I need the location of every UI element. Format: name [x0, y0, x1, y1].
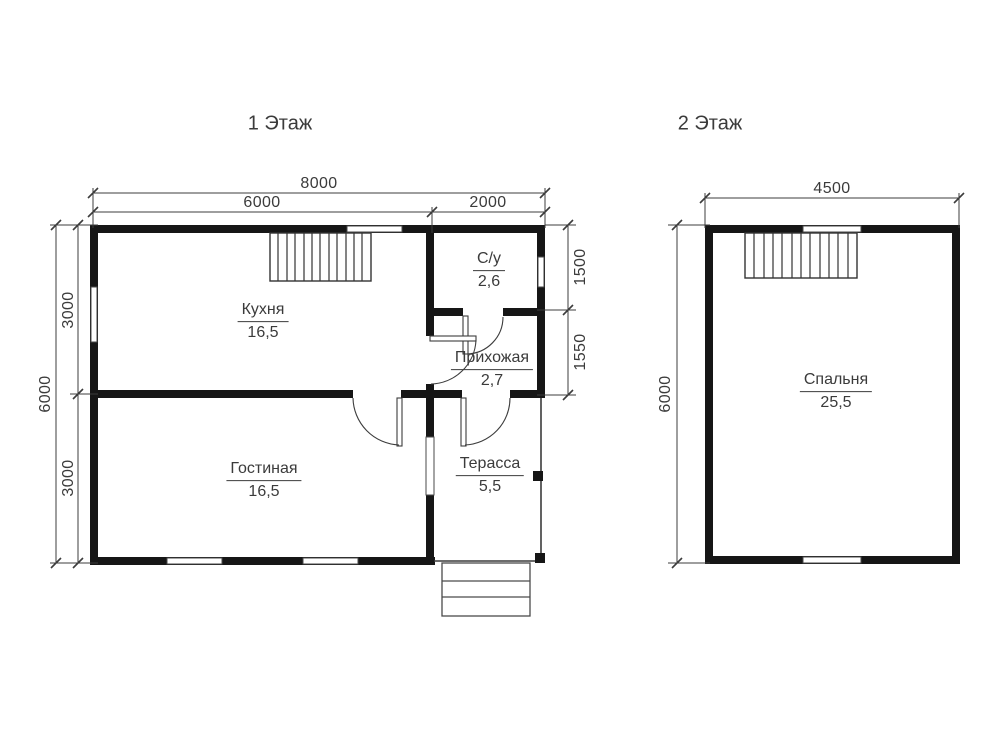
wall-top [90, 225, 545, 233]
floor2-title: 2 Этаж [678, 113, 743, 136]
floorplan-canvas: 1 Этаж 2 Этаж Кухня 16,5 С/у 2,6 Прихожа… [0, 0, 1000, 750]
wall-right [537, 225, 545, 398]
room-area: 2,7 [451, 370, 533, 391]
room-area: 2,6 [473, 271, 505, 292]
room-area: 16,5 [226, 481, 301, 502]
room-name: Гостиная [226, 460, 301, 481]
kitchen-door-opening [426, 336, 434, 384]
room-area: 5,5 [456, 476, 524, 497]
room-name: Прихожая [451, 349, 533, 370]
terrace-post [533, 471, 543, 481]
room-label-hallway: Прихожая 2,7 [451, 349, 533, 391]
dim-right-upper-f1: 1500 [572, 248, 590, 285]
livingroom-door-arc [353, 398, 399, 445]
room-label-livingroom: Гостиная 16,5 [226, 460, 301, 502]
wall-left [705, 225, 713, 564]
floor1-title: 1 Этаж [248, 113, 313, 136]
livingroom-door-opening [353, 390, 401, 398]
dim-total-height-f2: 6000 [657, 375, 675, 412]
wall-left [90, 225, 98, 565]
window [538, 257, 544, 287]
terrace-door-arc [465, 398, 510, 445]
window [303, 558, 358, 564]
entry-steps [442, 563, 530, 616]
room-label-kitchen: Кухня 16,5 [238, 301, 289, 343]
dim-right-lower-f1: 1550 [572, 333, 590, 370]
wall-right [952, 225, 960, 564]
room-label-terrace: Терасса 5,5 [456, 455, 524, 497]
livingroom-door-leaf [397, 398, 402, 446]
window [347, 226, 402, 232]
room-name: Спальня [800, 371, 872, 392]
dim-width-right-f1: 2000 [469, 194, 506, 212]
kitchen-door-leaf [430, 336, 476, 341]
wall-bottom [90, 557, 435, 565]
dim-total-width-f1: 8000 [300, 175, 337, 193]
stairs-floor1 [270, 233, 371, 281]
terrace-post [535, 553, 545, 563]
room-area: 16,5 [238, 322, 289, 343]
room-label-bedroom: Спальня 25,5 [800, 371, 872, 413]
window [803, 226, 861, 232]
terrace-door-leaf [461, 398, 466, 446]
dim-width-left-f1: 6000 [243, 194, 280, 212]
steps-outline [442, 563, 530, 616]
window [426, 437, 434, 495]
stairs-floor2 [745, 233, 857, 278]
bathroom-door-opening [463, 308, 503, 316]
dim-height-upper-f1: 3000 [60, 291, 78, 328]
room-name: Терасса [456, 455, 524, 476]
room-label-bathroom: С/у 2,6 [473, 250, 505, 292]
dim-height-lower-f1: 3000 [60, 459, 78, 496]
dim-total-width-f2: 4500 [813, 180, 850, 198]
room-name: Кухня [238, 301, 289, 322]
window [91, 287, 97, 342]
terrace-door-opening [462, 390, 510, 398]
window [167, 558, 222, 564]
room-area: 25,5 [800, 392, 872, 413]
room-name: С/у [473, 250, 505, 271]
dim-total-height-f1: 6000 [37, 375, 55, 412]
window [803, 557, 861, 563]
